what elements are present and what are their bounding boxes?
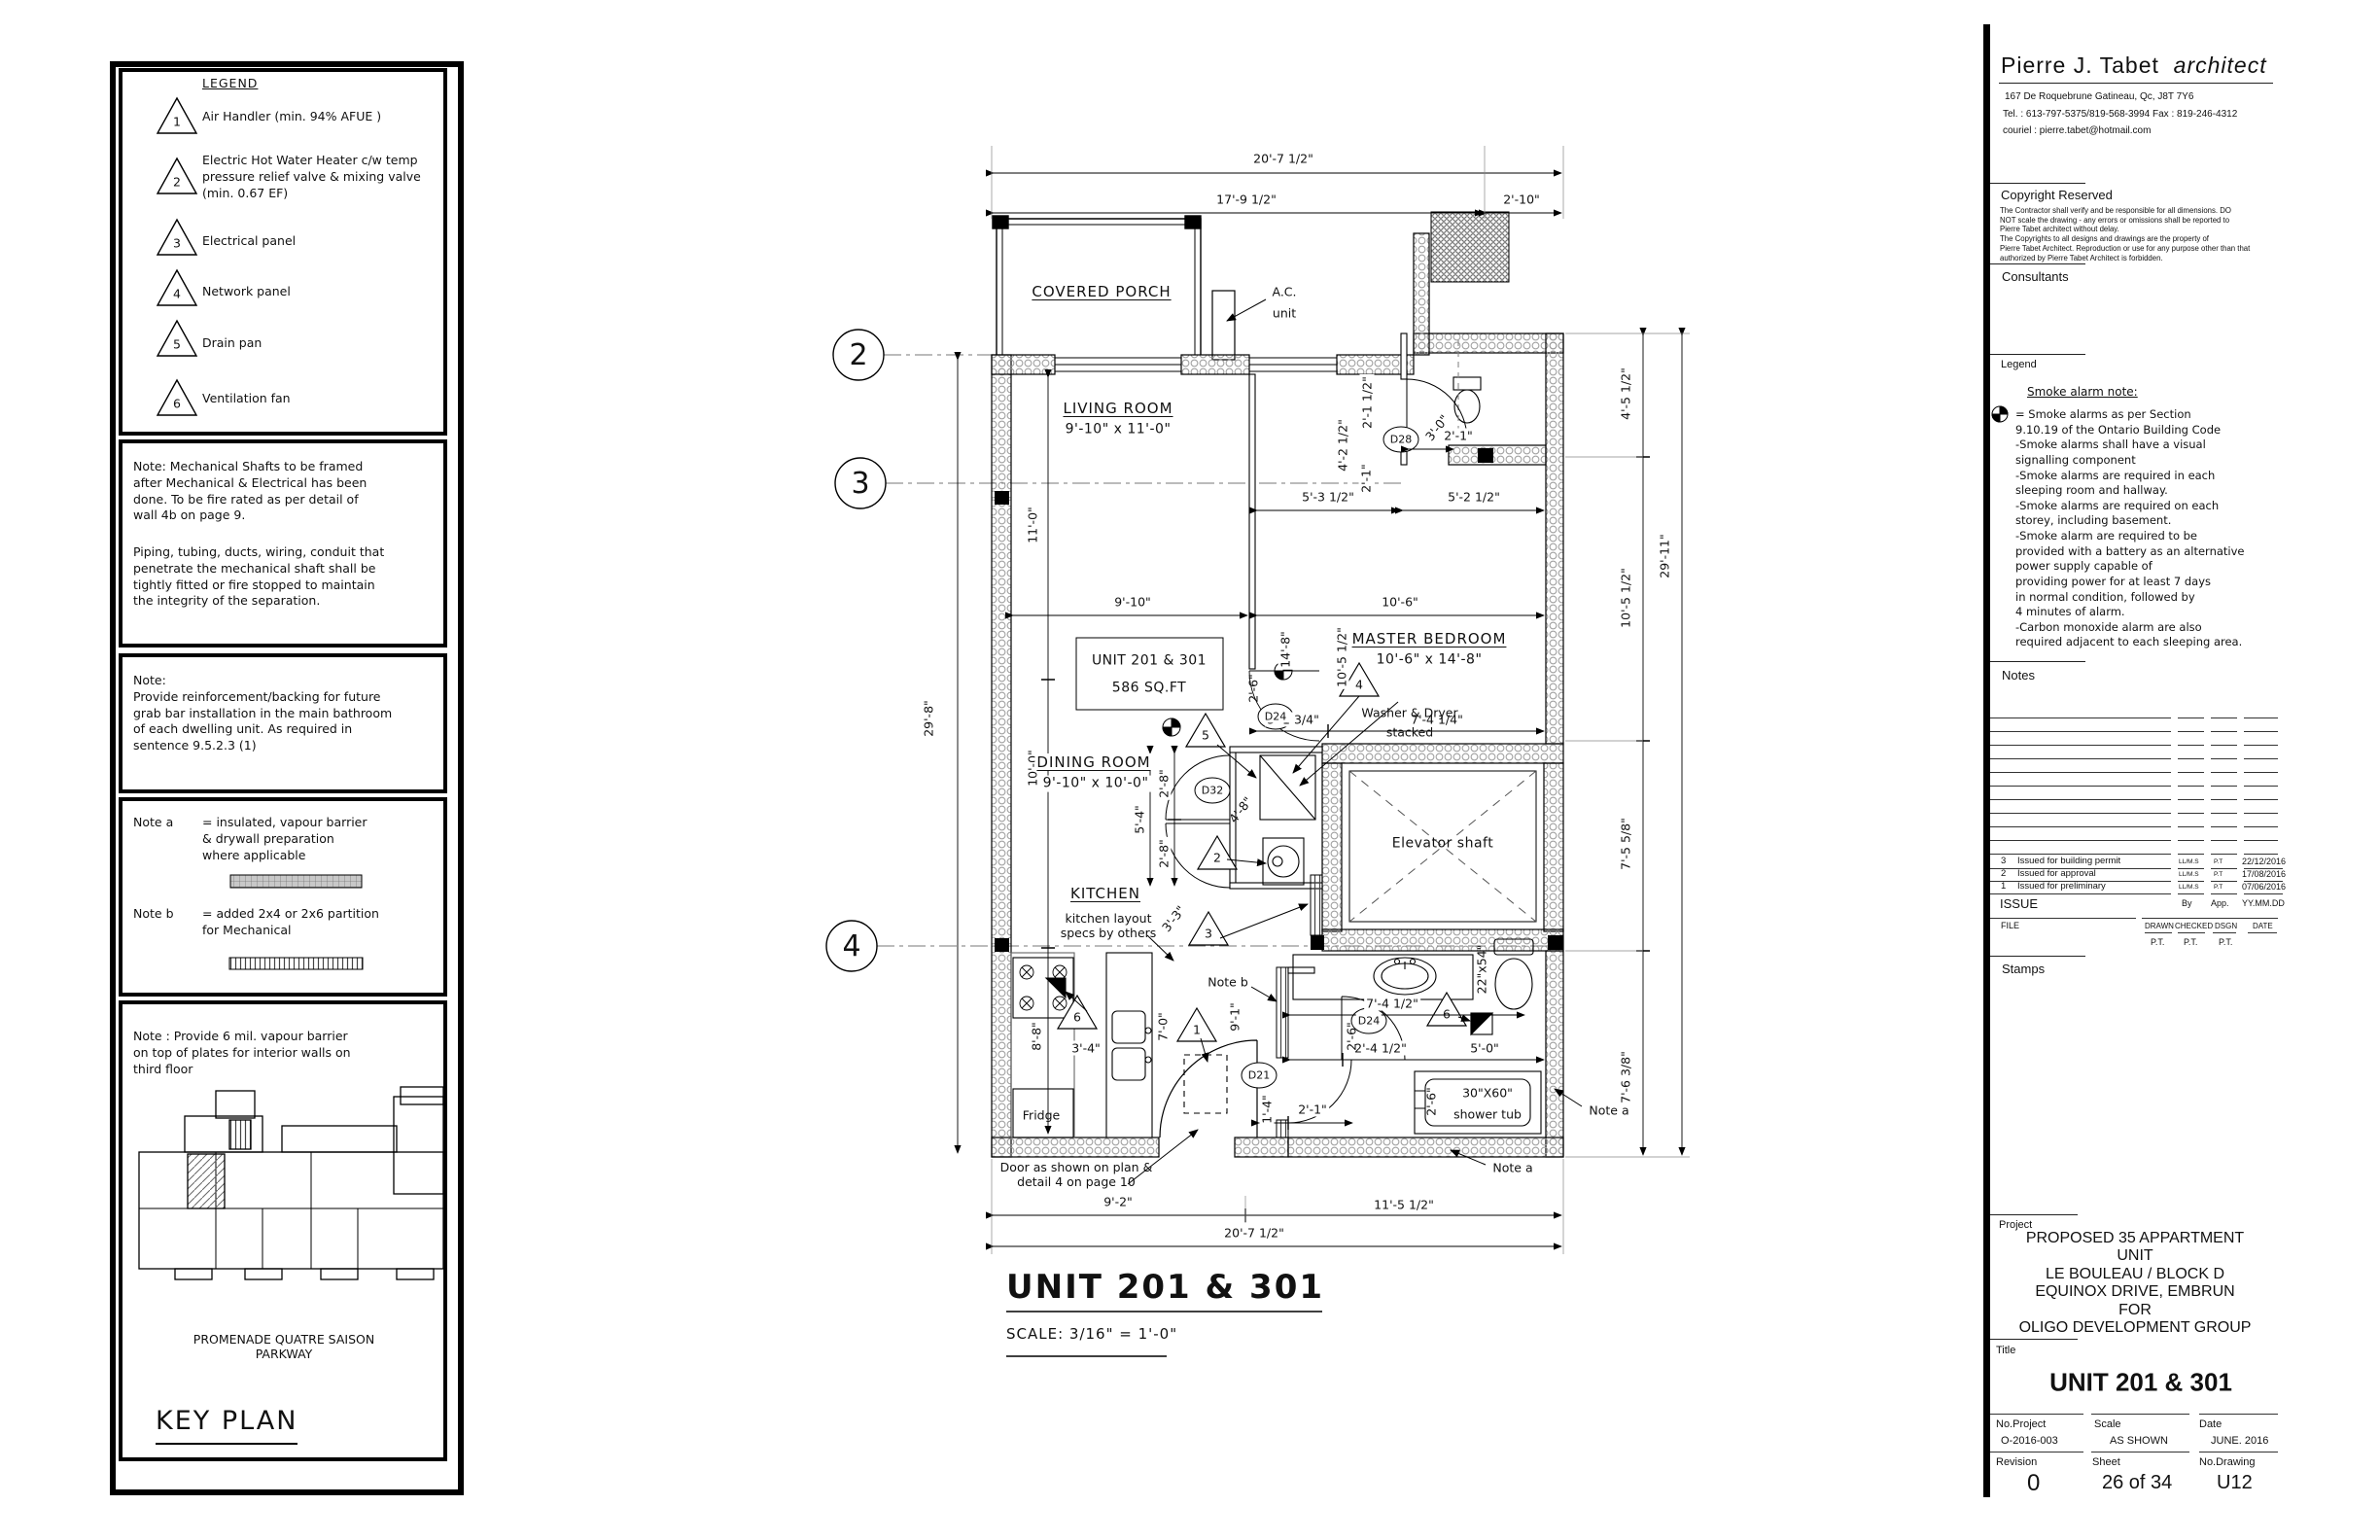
door-tag-d28: D28	[1388, 433, 1414, 445]
dim-3-3: 3'-3"	[1158, 901, 1190, 936]
issue-date-h: YY.MM.DD	[2242, 897, 2285, 909]
dim-9-2: 9'-2"	[1102, 1195, 1135, 1209]
architect-email: couriel : pierre.tabet@hotmail.com	[2003, 124, 2151, 137]
dim-top-2-10: 2'-10"	[1501, 192, 1542, 207]
legend-title: LEGEND	[202, 76, 258, 92]
noteb-partitions	[1277, 875, 1322, 1137]
dim-2-8a: 2'-8"	[1157, 767, 1172, 800]
legend-tri-num-1: 1	[171, 115, 183, 129]
revision-value: 0	[2027, 1468, 2040, 1499]
checked-header: CHECKED	[2175, 922, 2213, 932]
fridge-label: Fridge	[1021, 1108, 1062, 1123]
issue-row3-no: 3	[2001, 856, 2006, 868]
architect-name-word: architect	[2174, 52, 2267, 78]
note-b-label: Note b	[133, 906, 174, 923]
issue-row2-app: P.T	[2214, 871, 2222, 880]
room-dining: DINING ROOM	[1034, 753, 1152, 771]
door-note: Door as shown on plan & detail 4 on page…	[998, 1160, 1155, 1189]
room-covered-porch: COVERED PORCH	[1030, 283, 1172, 300]
dim-22x54: 22"x54"	[1475, 943, 1489, 997]
legend-item-4: Network panel	[202, 284, 291, 300]
drawing-header: No.Drawing	[2199, 1455, 2255, 1470]
dim-8-8: 8'-8"	[1030, 1020, 1044, 1053]
room-kitchen: KITCHEN	[1068, 885, 1142, 902]
grid-bubble-2: 2	[847, 338, 869, 373]
legend-tri-num-3: 3	[171, 236, 183, 251]
plan-title: UNIT 201 & 301	[1006, 1266, 1324, 1311]
sheet-value: 26 of 34	[2102, 1470, 2172, 1496]
tub-label-2: shower tub	[1452, 1107, 1523, 1122]
legend-tri-num-5: 5	[171, 337, 183, 352]
note-b-plan: Note b	[1206, 975, 1250, 990]
drawn-header: DRAWN	[2145, 922, 2174, 932]
vapour-note: Note : Provide 6 mil. vapour barrier on …	[133, 1029, 351, 1077]
dim-9-1: 9'-1"	[1228, 1000, 1242, 1033]
washer-label-2: stacked	[1384, 725, 1435, 740]
title-value: UNIT 201 & 301	[2047, 1367, 2234, 1397]
copyright-header: Copyright Reserved	[2001, 187, 2113, 203]
dim-5-3: 5'-3 1/2"	[1300, 490, 1356, 505]
dim-2-6b: 2'-6"	[1424, 1085, 1439, 1118]
tri-6a: 6	[1071, 1010, 1083, 1025]
tub-label-1: 30"X60"	[1460, 1086, 1515, 1101]
kitchen-note: kitchen layout specs by others	[1059, 911, 1159, 940]
tri-2: 2	[1211, 851, 1223, 865]
room-living: LIVING ROOM	[1061, 400, 1174, 417]
issue-row3-app: P.T	[2214, 858, 2222, 867]
room-master: MASTER BEDROOM	[1350, 630, 1509, 647]
no-project-value: O-2016-003	[2001, 1434, 2058, 1449]
checked-value: P.T.	[2184, 936, 2197, 948]
dim-5-0: 5'-0"	[1468, 1041, 1501, 1056]
unit-label: UNIT 201 & 301	[1090, 653, 1208, 670]
masonry-column	[1431, 212, 1509, 282]
dim-r7-6: 7'-6 3/8"	[1619, 1049, 1633, 1105]
dim-4-2: 4'-2 1/2"	[1336, 417, 1350, 473]
dim-11-0: 11'-0"	[1026, 505, 1040, 545]
dim-4-8: 4'-8"	[1225, 792, 1257, 827]
issue-row1-desc: Issued for preliminary	[2017, 881, 2106, 893]
issue-app-h: App.	[2211, 897, 2229, 909]
issue-row2-desc: Issued for approval	[2017, 868, 2096, 881]
room-living-dims: 9'-10" x 11'-0"	[1064, 422, 1173, 438]
scale-value: AS SHOWN	[2110, 1434, 2168, 1449]
legend-item-6: Ventilation fan	[202, 391, 291, 407]
consultants-header: Consultants	[2002, 268, 2069, 285]
legend-item-3: Electrical panel	[202, 233, 296, 250]
unit-label-box	[1076, 638, 1223, 710]
room-elevator: Elevator shaft	[1390, 836, 1495, 853]
project-text: PROPOSED 35 APPARTMENT UNIT LE BOULEAU /…	[2012, 1230, 2257, 1337]
dim-10-6: 10'-6"	[1380, 595, 1420, 610]
door-tag-d32: D32	[1200, 784, 1225, 796]
tri-5: 5	[1200, 728, 1211, 743]
dim-top-17: 17'-9 1/2"	[1214, 192, 1278, 207]
tri-4: 4	[1353, 678, 1365, 692]
notes-header: Notes	[2002, 667, 2035, 683]
issue-row3-desc: Issued for building permit	[2017, 856, 2120, 868]
dim-9-10: 9'-10"	[1112, 595, 1153, 610]
architect-name-main: Pierre J. Tabet	[2001, 52, 2159, 78]
dim-7-0: 7'-0"	[1156, 1010, 1171, 1043]
grid-bubble-4: 4	[840, 929, 862, 964]
tb-legend-header: Legend	[2001, 358, 2037, 372]
no-project-header: No.Project	[1996, 1417, 2046, 1432]
architect-tel: Tel. : 613-797-5375/819-568-3994 Fax : 8…	[2003, 108, 2237, 121]
grid-bubble-3: 3	[849, 467, 871, 502]
dim-2-1b: 2'-1"	[1442, 429, 1475, 443]
note-a-bottom: Note a	[1490, 1161, 1534, 1175]
dsgn-header: DSGN	[2215, 922, 2237, 932]
washer-label: Washer & Dryer	[1359, 706, 1459, 720]
issue-row2-date: 17/08/2016	[2242, 868, 2286, 880]
dim-3-4: 3'-4"	[1069, 1041, 1102, 1056]
dim-5-4: 5'-4"	[1133, 803, 1147, 836]
dim-1-4: 1'-4"	[1260, 1093, 1275, 1126]
dim-14-8: 14'-8"	[1278, 629, 1293, 670]
date-header3: Date	[2199, 1417, 2222, 1432]
dim-2-8b: 2'-8"	[1157, 837, 1172, 870]
unit-area: 586 SQ.FT	[1110, 681, 1188, 697]
smoke-alarm-icons	[1163, 406, 2008, 736]
issue-row2-by: LL/M.S	[2179, 871, 2199, 880]
issue-label: ISSUE	[2000, 895, 2038, 912]
file-header: FILE	[2001, 920, 2019, 931]
issue-row1-by: LL/M.S	[2179, 884, 2199, 892]
dim-r29-11: 29'-11"	[1658, 532, 1672, 580]
issue-row1-date: 07/06/2016	[2242, 881, 2286, 892]
dim-2-1h: 2'-1 1/2"	[1360, 374, 1375, 431]
legend-item-2: Electric Hot Water Heater c/w temp press…	[202, 153, 421, 201]
date-header2: DATE	[2253, 922, 2273, 932]
dim-20-7-bottom: 20'-7 1/2"	[1222, 1226, 1286, 1241]
date-value: JUNE. 2016	[2211, 1434, 2268, 1449]
legend-tri-num-6: 6	[171, 397, 183, 411]
issue-row1-no: 1	[2001, 881, 2006, 893]
smoke-note-text: = Smoke alarms as per Section 9.10.19 of…	[2015, 407, 2245, 650]
keyplan-title: KEY PLAN	[156, 1404, 297, 1445]
door-tag-d24a: D24	[1263, 710, 1288, 722]
dim-top-overall: 20'-7 1/2"	[1251, 152, 1315, 166]
dsgn-value: P.T.	[2219, 936, 2232, 948]
titleblock-bar	[1983, 24, 1990, 1497]
room-dining-dims: 9'-10" x 10'-0"	[1041, 776, 1151, 792]
drawing-value: U12	[2217, 1470, 2253, 1496]
issue-row1-app: P.T	[2214, 884, 2222, 892]
issue-row2-no: 2	[2001, 868, 2006, 881]
dim-7-4h: 7'-4 1/2"	[1364, 997, 1420, 1011]
room-master-dims: 10'-6" x 14'-8"	[1375, 652, 1485, 669]
tri-1: 1	[1191, 1023, 1203, 1037]
dim-2-6a: 2'-6"	[1345, 1020, 1359, 1053]
legend-tri-num-2: 2	[171, 175, 183, 190]
door-tag-d21: D21	[1246, 1068, 1272, 1081]
note-a-text: = insulated, vapour barrier & drywall pr…	[202, 815, 367, 863]
keyplan-street: PROMENADE QUATRE SAISON PARKWAY	[192, 1332, 376, 1361]
architect-address: 167 De Roquebrune Gatineau, Qc, J8T 7Y6	[2005, 90, 2193, 103]
door-tag-d24b: D24	[1356, 1014, 1382, 1027]
drawn-value: P.T.	[2151, 936, 2164, 948]
scale-header: Scale	[2094, 1417, 2121, 1432]
sheet-header: Sheet	[2092, 1455, 2120, 1470]
grabbar-note: Note: Provide reinforcement/backing for …	[133, 673, 392, 754]
copyright-text: The Contractor shall verify and be respo…	[2000, 206, 2250, 262]
drawing-sheet: LEGEND 1 2 3 4 5 6 Air Handler (min. 94%…	[0, 0, 2380, 1540]
dim-2-6: 2'-6"	[1246, 672, 1261, 705]
ac-label-1: A.C.	[1270, 285, 1298, 299]
dim-2-4h: 2'-4 1/2"	[1352, 1041, 1409, 1056]
ac-label-2: unit	[1271, 306, 1298, 321]
dim-29-8: 29'-8"	[922, 698, 936, 739]
dim-5-2: 5'-2 1/2"	[1446, 490, 1502, 505]
title-header: Title	[1996, 1344, 2015, 1358]
plan-scale: SCALE: 3/16" = 1'-0"	[1006, 1324, 1177, 1344]
mech-note-2: Piping, tubing, ducts, wiring, conduit t…	[133, 544, 384, 610]
windows	[1055, 358, 1337, 371]
legend-item-5: Drain pan	[202, 335, 262, 352]
architect-name: Pierre J. Tabet architect	[2001, 51, 2267, 81]
dim-10-5: 10'-5 1/2"	[1335, 625, 1349, 689]
issue-row3-date: 22/12/2016	[2242, 856, 2286, 867]
dim-r4-5: 4'-5 1/2"	[1619, 366, 1633, 422]
fixtures	[1013, 340, 1541, 1137]
stamps-header: Stamps	[2002, 961, 2045, 977]
smoke-note-title: Smoke alarm note:	[2027, 384, 2138, 400]
dim-11-5: 11'-5 1/2"	[1372, 1198, 1436, 1212]
dim-r7-5: 7'-5 5/8"	[1619, 816, 1633, 872]
wall-corner-posts	[995, 448, 1563, 952]
note-a-label: Note a	[133, 815, 173, 831]
legend-item-1: Air Handler (min. 94% AFUE )	[202, 109, 381, 125]
legend-tri-num-4: 4	[171, 287, 183, 301]
grid-bubbles	[826, 330, 886, 971]
dim-r10-5: 10'-5 1/2"	[1619, 566, 1633, 630]
mech-note-1: Note: Mechanical Shafts to be framed aft…	[133, 459, 367, 524]
issue-by-h: By	[2182, 897, 2192, 909]
issue-row3-by: LL/M.S	[2179, 858, 2199, 867]
dim-2-1a: 2'-1"	[1359, 462, 1374, 495]
dimension-lines	[958, 146, 1690, 1254]
dim-2-1c: 2'-1"	[1296, 1102, 1329, 1117]
tri-6b: 6	[1441, 1007, 1452, 1022]
note-b-text: = added 2x4 or 2x6 partition for Mechani…	[202, 906, 379, 939]
tri-3: 3	[1203, 927, 1214, 941]
